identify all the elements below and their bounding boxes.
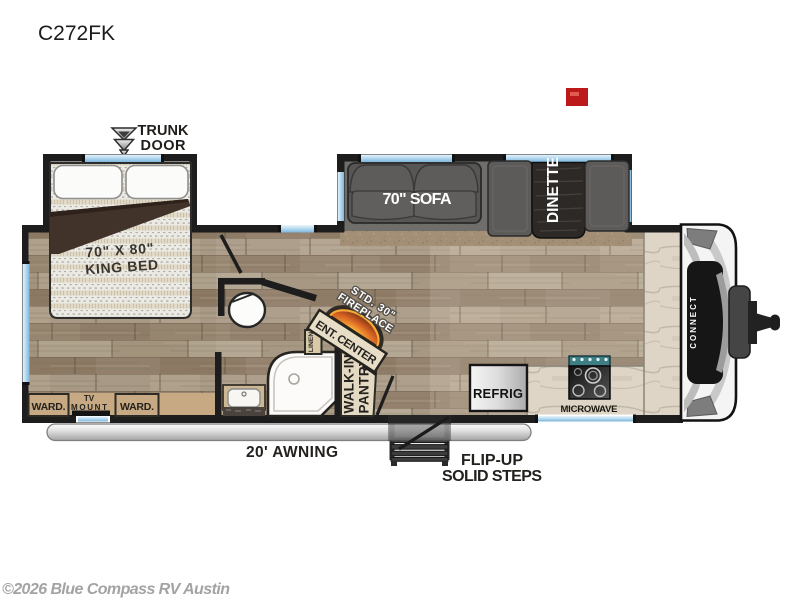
svg-text:SOLID STEPS: SOLID STEPS <box>442 468 542 485</box>
svg-text:TRUNK: TRUNK <box>138 123 190 139</box>
svg-text:WARD.: WARD. <box>120 401 154 413</box>
svg-text:FLIP-UP: FLIP-UP <box>461 452 523 469</box>
svg-text:C272FK: C272FK <box>38 22 115 45</box>
svg-text:20' AWNING: 20' AWNING <box>246 444 338 461</box>
svg-text:WALK-IN: WALK-IN <box>342 355 357 414</box>
svg-text:MICROWAVE: MICROWAVE <box>561 404 618 415</box>
svg-text:CONNECT: CONNECT <box>689 295 698 349</box>
svg-text:REFRIG: REFRIG <box>473 386 523 401</box>
svg-text:©2026 Blue Compass RV Austin: ©2026 Blue Compass RV Austin <box>2 581 230 598</box>
svg-text:70" SOFA: 70" SOFA <box>383 191 452 208</box>
svg-text:TV: TV <box>84 394 95 403</box>
svg-text:LINEN: LINEN <box>308 332 315 352</box>
svg-text:DINETTE: DINETTE <box>545 157 562 223</box>
svg-text:DOOR: DOOR <box>141 138 187 154</box>
svg-text:WARD.: WARD. <box>32 401 66 413</box>
